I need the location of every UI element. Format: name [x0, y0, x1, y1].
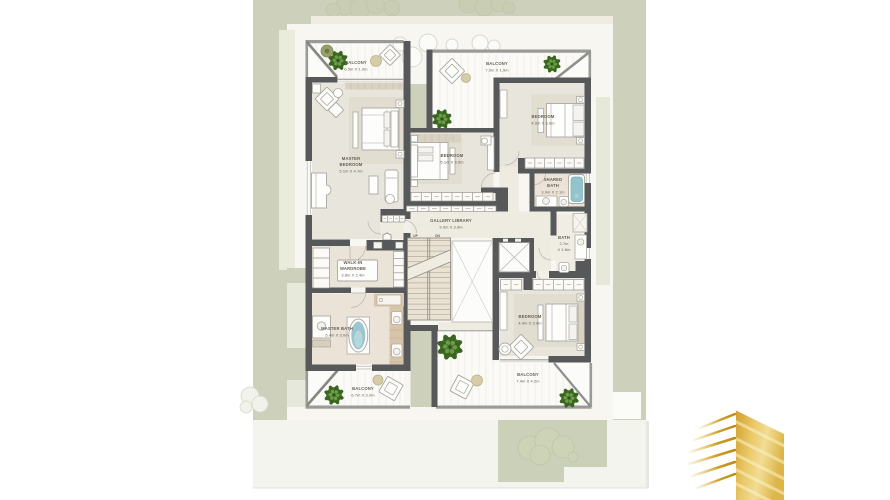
svg-text:WALK-IN: WALK-IN — [344, 260, 363, 265]
svg-text:5.1m X 3.5m: 5.1m X 3.5m — [440, 160, 463, 165]
svg-text:4.9m X 3.6m: 4.9m X 3.6m — [518, 321, 541, 326]
svg-text:BALCONY: BALCONY — [345, 60, 367, 65]
svg-text:MASTER: MASTER — [342, 156, 361, 161]
svg-text:3.8m X 2.4m: 3.8m X 2.4m — [341, 273, 364, 278]
svg-text:4.9m X 3.6m: 4.9m X 3.6m — [531, 121, 554, 126]
svg-text:3.0m X 2.1m: 3.0m X 2.1m — [541, 190, 564, 195]
svg-text:X 1.6m: X 1.6m — [558, 247, 571, 252]
svg-text:BATH: BATH — [558, 235, 570, 240]
svg-text:BALCONY: BALCONY — [352, 386, 374, 391]
svg-text:BALCONY: BALCONY — [486, 61, 508, 66]
svg-text:BEDROOM: BEDROOM — [519, 314, 542, 319]
svg-text:BEDROOM: BEDROOM — [532, 114, 555, 119]
svg-text:DN: DN — [435, 234, 440, 238]
svg-text:7.0m X 1.9m: 7.0m X 1.9m — [485, 68, 508, 73]
svg-text:6.7m X 3.0m: 6.7m X 3.0m — [351, 393, 374, 398]
svg-text:5.1m X 4.7m: 5.1m X 4.7m — [339, 169, 362, 174]
svg-text:9.0m X 3.9m: 9.0m X 3.9m — [439, 225, 462, 230]
svg-text:BATH: BATH — [547, 183, 559, 188]
svg-text:BEDROOM: BEDROOM — [340, 162, 363, 167]
svg-text:5.4m X 3.0m: 5.4m X 3.0m — [325, 333, 348, 338]
svg-text:BEDROOM: BEDROOM — [441, 153, 464, 158]
svg-text:MASTER BATH: MASTER BATH — [321, 326, 353, 331]
svg-text:GALLERY LIBRARY: GALLERY LIBRARY — [430, 218, 472, 223]
svg-text:SHARED: SHARED — [544, 177, 563, 182]
svg-text:7.4m X 4.2m: 7.4m X 4.2m — [516, 379, 539, 384]
svg-text:WARDROBE: WARDROBE — [340, 266, 366, 271]
svg-text:2.7m: 2.7m — [559, 241, 568, 246]
svg-text:BALCONY: BALCONY — [517, 372, 539, 377]
svg-text:6.5m X 1.9m: 6.5m X 1.9m — [344, 67, 367, 72]
